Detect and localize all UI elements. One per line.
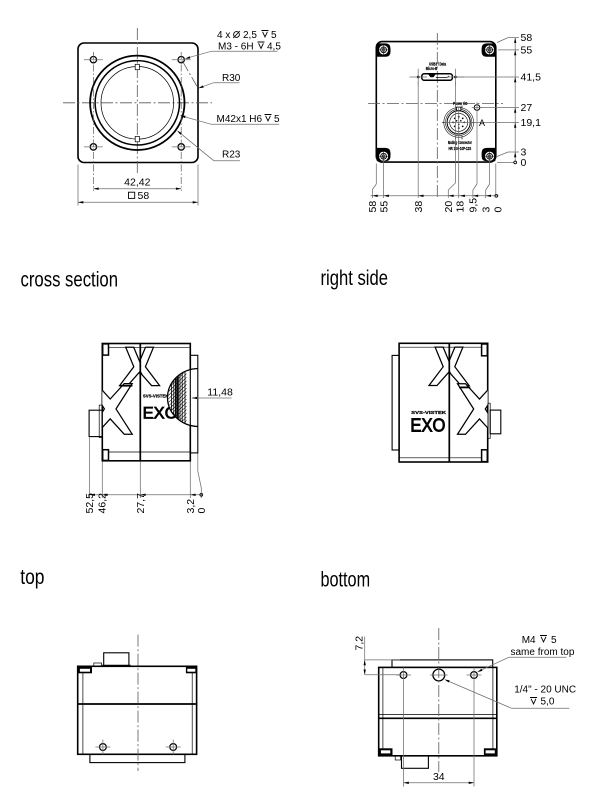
svg-text:20: 20	[443, 201, 455, 213]
svg-text:Micro-B: Micro-B	[426, 66, 438, 71]
svg-text:0: 0	[196, 508, 208, 514]
svg-text:58: 58	[521, 32, 533, 44]
svg-text:cross section: cross section	[21, 269, 119, 292]
svg-text:27,7: 27,7	[135, 493, 147, 514]
svg-text:41,5: 41,5	[521, 72, 542, 84]
svg-text:58: 58	[138, 190, 150, 202]
svg-text:HR 10A-10P-12S: HR 10A-10P-12S	[449, 146, 472, 151]
svg-text:0: 0	[492, 207, 504, 213]
svg-text:EXO: EXO	[410, 414, 445, 435]
svg-text:11,48: 11,48	[207, 386, 233, 398]
svg-text:34: 34	[433, 771, 445, 783]
svg-text:5: 5	[271, 30, 277, 41]
svg-text:5: 5	[274, 114, 280, 125]
svg-text:A: A	[479, 118, 485, 128]
svg-text:9,5: 9,5	[468, 198, 480, 213]
svg-text:1/4" - 20 UNC: 1/4" - 20 UNC	[514, 685, 576, 696]
svg-text:M42x1 H6: M42x1 H6	[217, 114, 263, 125]
svg-text:R23: R23	[222, 150, 241, 161]
svg-text:bottom: bottom	[321, 569, 371, 592]
svg-text:0: 0	[521, 157, 527, 169]
svg-text:55: 55	[378, 201, 390, 213]
svg-text:52,5: 52,5	[84, 493, 96, 514]
svg-text:38: 38	[413, 201, 425, 213]
svg-text:3: 3	[480, 207, 492, 213]
svg-text:M4: M4	[522, 635, 536, 646]
svg-text:19,1: 19,1	[521, 117, 542, 129]
svg-text:5: 5	[551, 635, 557, 646]
svg-text:18: 18	[454, 201, 466, 213]
svg-text:same from top: same from top	[511, 647, 575, 658]
svg-text:5,0: 5,0	[541, 697, 555, 708]
svg-text:2,5: 2,5	[243, 30, 257, 41]
svg-text:55: 55	[521, 45, 533, 57]
svg-text:SVS-VISTEK: SVS-VISTEK	[143, 394, 169, 399]
svg-text:7,2: 7,2	[353, 636, 365, 651]
svg-text:right side: right side	[321, 267, 389, 290]
svg-text:4 x: 4 x	[217, 30, 230, 41]
svg-text:top: top	[20, 566, 44, 589]
svg-text:42,42: 42,42	[124, 176, 150, 188]
svg-text:27: 27	[521, 102, 533, 114]
svg-text:46,2: 46,2	[97, 493, 109, 514]
svg-text:Mating Connector: Mating Connector	[448, 140, 472, 145]
svg-text:58: 58	[367, 201, 379, 213]
